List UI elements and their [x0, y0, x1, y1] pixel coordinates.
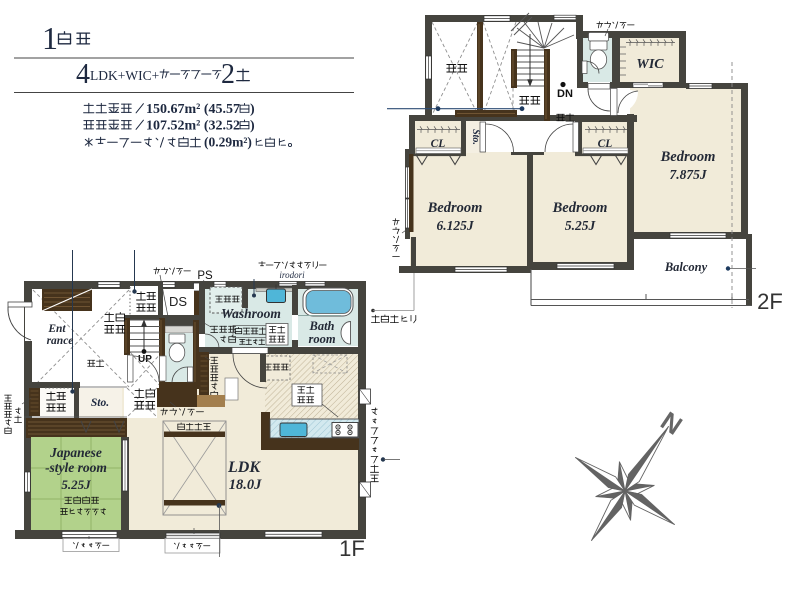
- svg-text:(0.29m²): (0.29m²): [204, 135, 252, 150]
- svg-text:irodori: irodori: [279, 270, 305, 280]
- svg-text:rance: rance: [47, 335, 74, 347]
- svg-text:18.0J: 18.0J: [229, 477, 262, 493]
- svg-text:2: 2: [221, 59, 235, 90]
- svg-text:Washroom: Washroom: [221, 306, 281, 321]
- svg-text:4: 4: [76, 59, 90, 90]
- svg-text:PS: PS: [197, 270, 213, 282]
- svg-text:Sto.: Sto.: [91, 397, 109, 409]
- svg-text:2F: 2F: [757, 289, 783, 314]
- svg-text:150.67m² (45.57: 150.67m² (45.57: [146, 102, 240, 117]
- svg-text:1F: 1F: [339, 536, 365, 561]
- svg-text:-style room: -style room: [45, 460, 107, 475]
- svg-text:1: 1: [42, 20, 58, 56]
- svg-text:Bedroom: Bedroom: [660, 149, 716, 165]
- svg-text:Bedroom: Bedroom: [427, 200, 483, 216]
- svg-text:5.25J: 5.25J: [61, 477, 91, 492]
- svg-text:Balcony: Balcony: [664, 260, 708, 274]
- svg-text:Ent: Ent: [47, 323, 66, 335]
- svg-text:WIC: WIC: [636, 57, 664, 72]
- svg-text:DS: DS: [169, 294, 187, 309]
- svg-text:5.25J: 5.25J: [565, 218, 597, 233]
- svg-text:Sto.: Sto.: [470, 129, 481, 145]
- svg-text:LDK: LDK: [227, 459, 261, 476]
- svg-text:): ): [250, 102, 255, 117]
- svg-text:107.52m² (32.52: 107.52m² (32.52: [146, 119, 240, 134]
- svg-text:UP: UP: [138, 354, 152, 365]
- svg-text:LDK+WIC+: LDK+WIC+: [90, 68, 159, 83]
- svg-text:room: room: [308, 332, 335, 346]
- svg-text:): ): [250, 119, 255, 134]
- svg-text:Bedroom: Bedroom: [552, 200, 608, 216]
- svg-text:6.125J: 6.125J: [436, 218, 474, 233]
- svg-text:Japanese: Japanese: [49, 445, 102, 460]
- svg-text:Bath: Bath: [308, 319, 334, 333]
- svg-text:7.875J: 7.875J: [669, 167, 707, 182]
- svg-text:DN: DN: [557, 88, 573, 100]
